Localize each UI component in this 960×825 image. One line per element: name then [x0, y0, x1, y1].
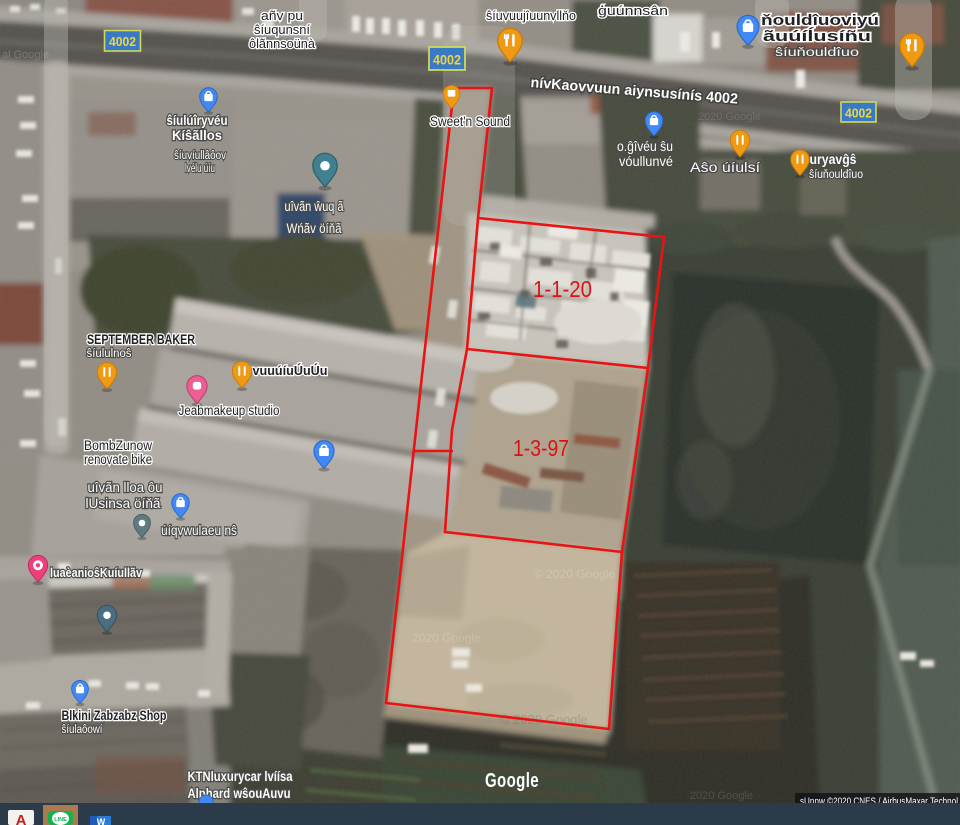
svg-text:1-1-20: 1-1-20: [533, 276, 592, 302]
svg-text:o.ĝîvéu ŝu: o.ĝîvéu ŝu: [617, 139, 673, 154]
svg-text:ŝíuňouldîuo: ŝíuňouldîuo: [775, 47, 859, 59]
svg-text:SEPTEMBER BAKER: SEPTEMBER BAKER: [87, 332, 195, 347]
svg-text:A: A: [16, 812, 27, 825]
svg-text:uîvãn lloa ôu: uîvãn lloa ôu: [88, 480, 163, 495]
svg-text:renovate bike: renovate bike: [84, 452, 152, 467]
svg-text:4002: 4002: [109, 34, 136, 49]
svg-text:uîvãn ŵuq ã: uîvãn ŵuq ã: [285, 199, 344, 214]
svg-text:Aŝo úíulsí: Aŝo úíulsí: [690, 160, 760, 175]
svg-text:Wńãv öíňã: Wńãv öíňã: [287, 221, 342, 236]
svg-text:ŝíulaôowí: ŝíulaôowí: [62, 724, 104, 736]
svg-text:añv pu: añv pu: [261, 9, 303, 23]
svg-text:ŝíuqunsní: ŝíuqunsní: [254, 23, 311, 37]
svg-text:lUsinsa öíňã: lUsinsa öíňã: [86, 496, 161, 511]
svg-text:ģuúnnsân: ģuúnnsân: [598, 4, 668, 18]
svg-text:4002: 4002: [433, 52, 461, 68]
svg-text:ŝíuňouldîuo: ŝíuňouldîuo: [809, 169, 863, 181]
svg-text:úíqvwulaeu nŝ: úíqvwulaeu nŝ: [161, 523, 237, 538]
svg-text:4002: 4002: [845, 106, 872, 121]
svg-text:ňouldîuoviyú: ňouldîuoviyú: [761, 13, 879, 29]
svg-text:Google: Google: [485, 770, 539, 792]
svg-text:Sweet'n Sound: Sweet'n Sound: [430, 114, 510, 129]
svg-text:Blkini Zabzabz Shop: Blkini Zabzabz Shop: [62, 707, 167, 723]
svg-text:lvélu úíu: lvélu úíu: [185, 163, 215, 175]
svg-text:ãuúíĺusíñu: ãuúíĺusíñu: [763, 27, 871, 45]
svg-text:uryavĝŝ: uryavĝŝ: [810, 152, 857, 167]
svg-text:BombZunow: BombZunow: [84, 438, 152, 453]
svg-text:ŝíululnoŝ: ŝíululnoŝ: [87, 348, 132, 360]
svg-text:luaèanioŝKuíullãv: luaèanioŝKuíullãv: [50, 565, 143, 580]
svg-text:LINE: LINE: [54, 817, 67, 823]
svg-text:vóullunvé: vóullunvé: [619, 154, 673, 169]
svg-text:ŝíuvíullâôov: ŝíuvíullâôov: [174, 150, 226, 162]
svg-text:W: W: [97, 817, 106, 825]
svg-text:ŝíulúîryvéu: ŝíulúîryvéu: [167, 113, 228, 128]
svg-text:ŝíuvuujîuunvllňo: ŝíuvuujîuunvllňo: [486, 9, 576, 23]
svg-text:vuuúíuÚuÚu: vuuúíuÚuÚu: [253, 363, 328, 378]
svg-text:KTNluxurycar lvíísa: KTNluxurycar lvíísa: [188, 768, 293, 784]
svg-text:Kíŝãllos: Kíŝãllos: [172, 128, 222, 143]
svg-text:ôlãnnsoünà: ôlãnnsoünà: [249, 37, 315, 51]
svg-text:1-3-97: 1-3-97: [513, 435, 569, 461]
